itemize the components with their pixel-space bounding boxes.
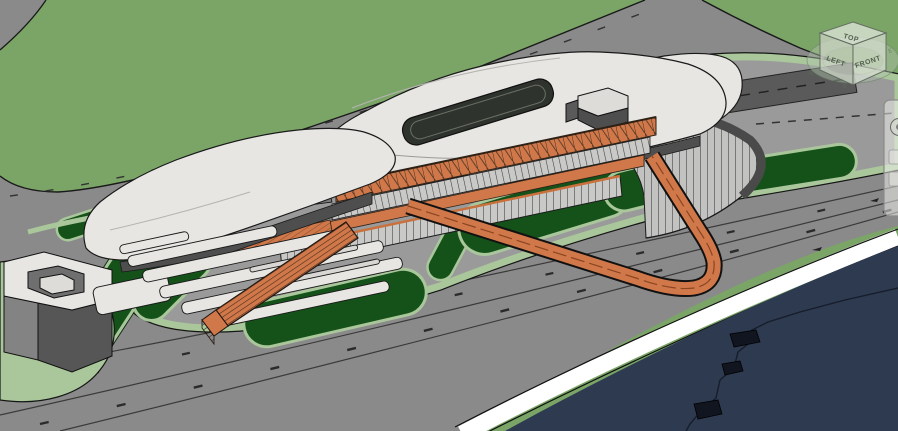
navigation-bar[interactable] — [884, 100, 898, 216]
nav-tool-icon[interactable] — [889, 150, 898, 164]
nav-tool-icon[interactable] — [889, 172, 898, 186]
office-building[interactable] — [4, 252, 112, 372]
revit-3d-viewport[interactable]: W S E TOP LEFT FRONT — [0, 0, 898, 431]
